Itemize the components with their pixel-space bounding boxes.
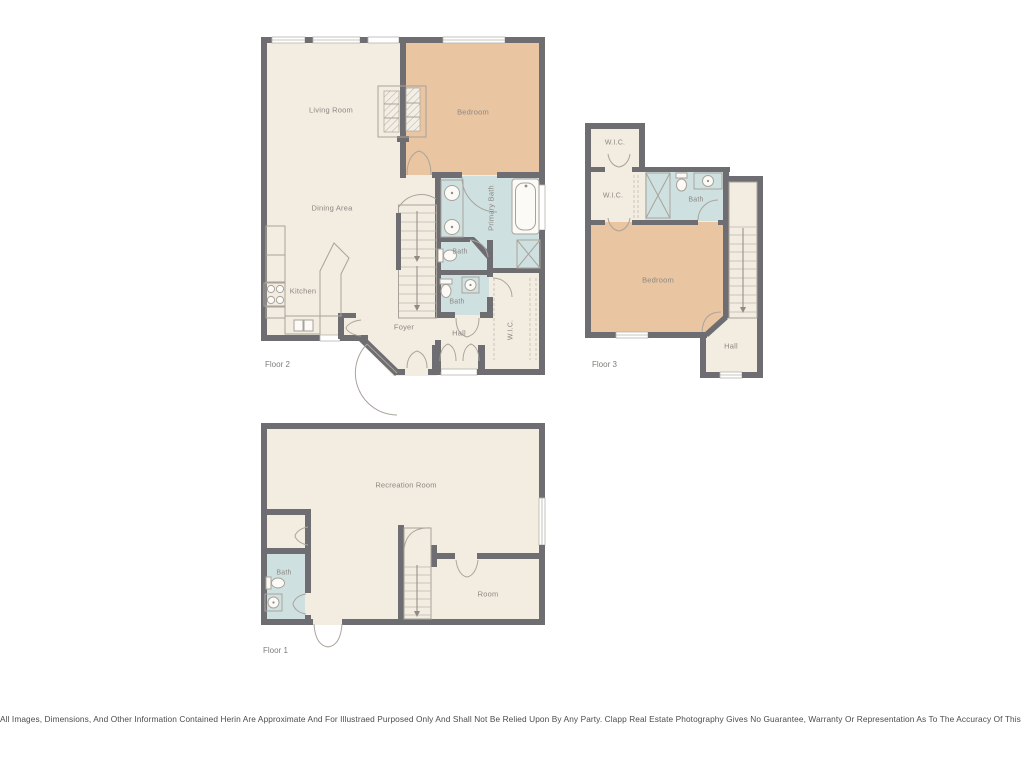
living-bedroom-wall (400, 41, 406, 178)
room-label-bath-upper-f2: Bath (452, 249, 467, 256)
floor2-plan (261, 37, 545, 415)
disclaimer-text: All Images, Dimensions, And Other Inform… (0, 714, 1024, 724)
room-label-foyer: Foyer (394, 323, 414, 332)
room-label-living-room: Living Room (309, 106, 353, 115)
room-label-hall-f2: Hall (452, 329, 466, 338)
room-label-hall-f3: Hall (724, 342, 738, 351)
room-label-primary-bath: Primary Bath (487, 185, 496, 231)
room-label-wic-upper-f3: W.I.C. (605, 140, 625, 147)
room-label-recreation-room: Recreation Room (375, 481, 436, 490)
kitchen-window (320, 335, 340, 341)
toilet-icon (266, 577, 285, 589)
floorplan-drawing (0, 0, 1024, 768)
room-label-bedroom-f2: Bedroom (457, 108, 489, 117)
floorplan-page: Living Room Bedroom Dining Area Kitchen … (0, 0, 1024, 768)
floor1-tag: Floor 1 (263, 646, 288, 655)
kitchen-sink-icon (294, 320, 303, 331)
floor1-plan (261, 423, 545, 647)
entry-door (314, 624, 342, 647)
room-label-bath-f3: Bath (688, 197, 703, 204)
room-label-dining-area: Dining Area (312, 204, 353, 213)
room-label-bath-f1: Bath (276, 570, 291, 577)
toilet-icon (440, 279, 452, 298)
floor3-plan (585, 123, 763, 378)
room-label-kitchen: Kitchen (290, 287, 316, 296)
hall-window (441, 369, 477, 375)
floor3-tag: Floor 3 (592, 360, 617, 369)
room-label-bath-lower-f2: Bath (449, 299, 464, 306)
room-label-wic-f2: W.I.C. (508, 320, 515, 340)
room-label-bedroom-f3: Bedroom (642, 276, 674, 285)
bathtub-icon (512, 179, 539, 234)
room-label-room-f1: Room (478, 590, 499, 599)
primary-bath-window (539, 185, 545, 230)
kitchen-sink-icon (304, 320, 313, 331)
floor2-tag: Floor 2 (265, 360, 290, 369)
toilet-icon (676, 173, 687, 191)
room-label-wic-lower-f3: W.I.C. (603, 193, 623, 200)
